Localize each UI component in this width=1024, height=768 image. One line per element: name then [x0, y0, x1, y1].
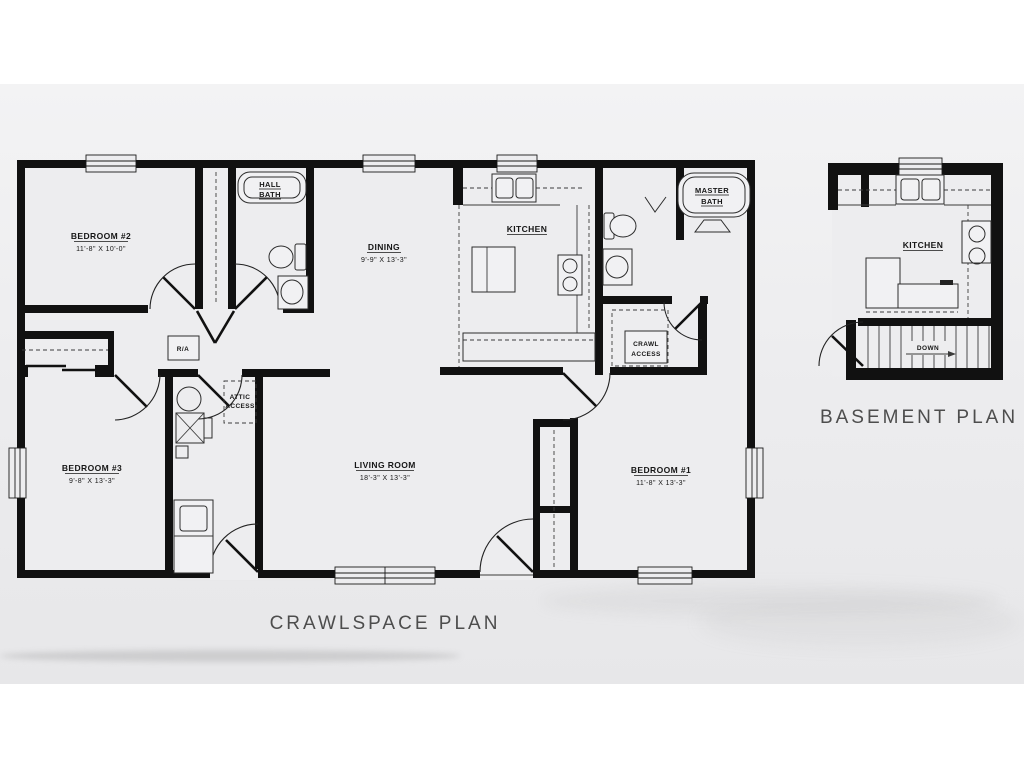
range-stove	[558, 255, 582, 295]
bedroom1-dims: 11'-8" X 13'-3"	[636, 480, 686, 487]
basement-plan: DOWN KITCHEN	[819, 158, 1003, 380]
window	[746, 448, 763, 498]
sink-vanity	[278, 276, 308, 309]
hall-bath-label-2: BATH	[259, 190, 281, 199]
floor-plan-page: { "titles": { "crawlspace": "CRAWLSPACE …	[0, 0, 1024, 768]
window	[497, 155, 537, 172]
kitchen-label: KITCHEN	[507, 224, 548, 234]
master-bath-label-1: MASTER	[695, 186, 729, 195]
kitchen-sink	[896, 175, 944, 204]
living-room-label: LIVING ROOM	[354, 460, 416, 470]
attic-access-label-1: ATTIC	[230, 394, 251, 401]
back-door-opening	[210, 569, 258, 580]
bedroom1-label: BEDROOM #1	[631, 465, 691, 475]
basement-kitchen-label: KITCHEN	[903, 240, 944, 250]
window	[9, 448, 26, 498]
toilet	[604, 213, 636, 239]
down-label: DOWN	[917, 345, 939, 352]
bedroom2-dims: 11'-8" X 10'-0"	[76, 246, 126, 253]
washer-dryer	[174, 500, 213, 573]
master-bath-label-2: BATH	[701, 197, 723, 206]
crawl-access-label-1: CRAWL	[633, 341, 659, 348]
dining-label: DINING	[368, 242, 400, 252]
attic-access-label-2: ACCESS	[225, 403, 255, 410]
basement-plan-title: BASEMENT PLAN	[820, 407, 1018, 429]
basement-window	[899, 158, 942, 175]
kitchen-island	[472, 247, 515, 292]
kitchen-sink	[492, 174, 536, 202]
dining-dims: 9'-9" X 13'-3"	[361, 257, 407, 264]
entry-door-opening	[480, 569, 533, 580]
bedroom3-dims: 9'-8" X 13'-3"	[69, 478, 115, 485]
crawlspace-plan-title: CRAWLSPACE PLAN	[270, 613, 501, 635]
crawlspace-plan: BEDROOM #2 11'-8" X 10'-0" HALL BATH DIN…	[9, 155, 763, 584]
living-room-dims: 18'-3" X 13'-3"	[360, 475, 410, 482]
bedroom3-label: BEDROOM #3	[62, 463, 122, 473]
return-air-label: R/A	[177, 346, 189, 353]
range-stove	[962, 221, 991, 264]
toilet	[269, 244, 306, 270]
window	[363, 155, 415, 172]
crawl-access-label-2: ACCESS	[631, 351, 661, 358]
floor-plan-drawing: BEDROOM #2 11'-8" X 10'-0" HALL BATH DIN…	[0, 0, 1024, 768]
hall-bath-label-1: HALL	[259, 180, 281, 189]
window	[335, 567, 435, 584]
bedroom2-label: BEDROOM #2	[71, 231, 131, 241]
basement-labels: KITCHEN	[903, 240, 944, 251]
window	[86, 155, 136, 172]
sink-vanity	[603, 249, 632, 285]
window	[638, 567, 692, 584]
